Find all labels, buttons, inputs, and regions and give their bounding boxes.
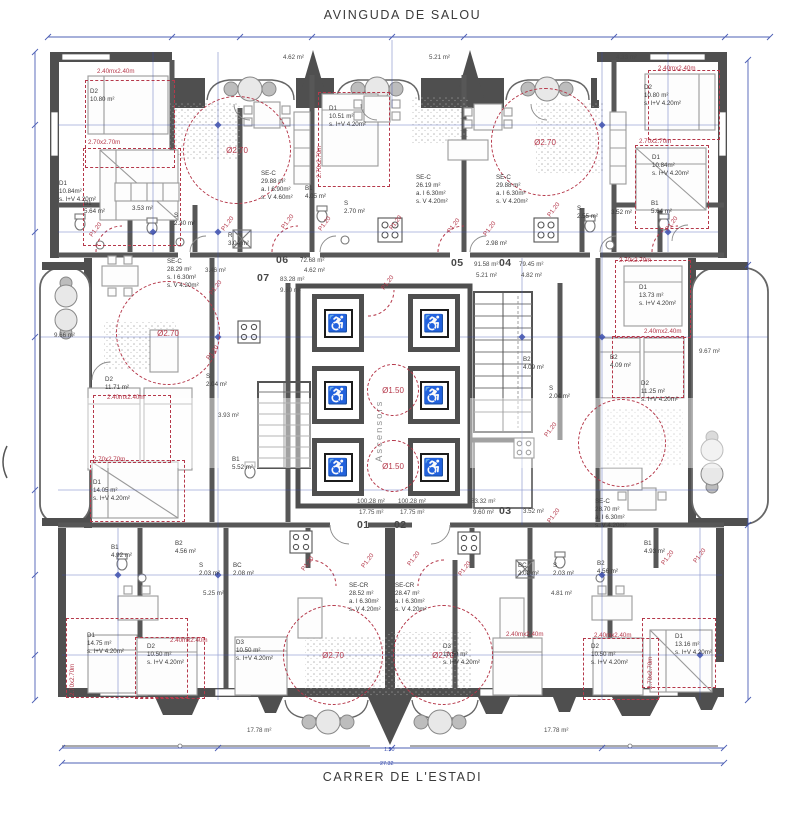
plan-label: 2.40mx2.40m	[170, 637, 208, 645]
plan-label: 3.53 m²	[132, 205, 153, 213]
plan-label: SE-CR 28.47 m² a. I 6.30m² s. V 4.20m²	[395, 582, 427, 614]
plan-label: P1.20	[546, 507, 562, 525]
plan-label: B2 4.09 m²	[610, 354, 631, 370]
plan-label: 17.75 m²	[400, 509, 424, 517]
plan-label: BC 2.08 m²	[518, 562, 539, 578]
plan-label: 2.70x2.70m	[88, 139, 120, 147]
plan-label: D1 10.84m² s. I+V 4.20m²	[652, 154, 689, 178]
plan-label: 2.40mx2.40m	[594, 632, 632, 640]
plan-label: P1.20	[543, 421, 559, 439]
plan-label: 9.60 m²	[280, 287, 301, 295]
plan-label: 1.50	[384, 747, 395, 754]
plan-label: 3.52 m²	[611, 209, 632, 217]
plan-label: 5.25 m²	[203, 590, 224, 598]
plan-label: 06	[276, 254, 288, 268]
plan-label: 9.60 m²	[473, 509, 494, 517]
plan-label: S 2.03 m²	[199, 562, 220, 578]
clearance-circle-label: Ø2.70	[322, 651, 344, 660]
plan-label: S 2.70 m²	[344, 200, 365, 216]
plan-label: B1 4.92 m²	[111, 544, 132, 560]
plan-label: D1 14.75 m² s. I+V 4.20m²	[87, 632, 124, 656]
clearance-circle-label: Ø2.70	[157, 329, 179, 338]
plan-label: R 3.04 m²	[228, 232, 249, 248]
plan-label: P1.20	[208, 279, 224, 297]
plan-label: 91.58 m²	[474, 261, 498, 269]
plan-label: P1.20	[406, 550, 422, 568]
plan-label: P1.20	[546, 201, 562, 219]
plan-label: 72.68 m²	[300, 257, 324, 265]
plan-label: P1.20	[317, 215, 333, 233]
plan-label: B2 4.09 m²	[523, 356, 544, 372]
plan-label: 2.40mx2.40m	[97, 68, 135, 76]
plan-label: P1.20	[692, 547, 708, 565]
plan-label: S 2.55 m²	[577, 205, 598, 221]
plan-label: 2.70x2.70m	[647, 657, 655, 689]
plan-label: D2 11.25 m² s. I+V 4.20m²	[641, 380, 678, 404]
clearance-circle: Ø1.50	[367, 364, 419, 416]
plan-label: 3.52 m²	[523, 508, 544, 516]
plan-label: P1.20	[457, 560, 473, 578]
plan-label: D1 10.51 m² s. I+V 4.20m²	[329, 105, 366, 129]
plan-label: 4.82 m²	[521, 272, 542, 280]
plan-label: D1 13.73 m² s. I+V 4.20m²	[639, 284, 676, 308]
plan-label: D2 10.80 m²	[90, 88, 114, 104]
plan-label: SE-CR 28.52 m² a. I 6.30m² s. V 4.20m²	[349, 582, 381, 614]
clearance-circle: Ø2.70	[116, 281, 220, 385]
plan-label: 17.78 m²	[544, 727, 568, 735]
floor-plan-page: AVINGUDA DE SALOU CARRER DE L'ESTADI	[0, 0, 805, 814]
clearance-circle: Ø1.50	[367, 440, 419, 492]
plan-label: 9.67 m²	[699, 348, 720, 356]
plan-label: 17.75 m²	[359, 509, 383, 517]
plan-label: 4.62 m²	[304, 267, 325, 275]
plan-label: 2.98 m²	[486, 240, 507, 248]
plan-label: 5.21 m²	[476, 272, 497, 280]
plan-label: 3.93 m²	[218, 412, 239, 420]
plan-label: P1.20	[482, 220, 498, 238]
plan-label: D3 10.50 m² s. I+V 4.20m²	[236, 639, 273, 663]
plan-label: D1 13.16 m² s. I+V 4.20m²	[675, 633, 712, 657]
plan-label: 2.40mx2.40m	[107, 394, 145, 402]
plan-label: P1.20	[446, 217, 462, 235]
plan-label: P1.20	[300, 555, 316, 573]
clearance-circle-label: Ø2.70	[226, 146, 248, 155]
plan-label: P1.20	[220, 215, 236, 233]
plan-label: 83.32 m²	[471, 498, 495, 506]
plan-label: SE-C 29.88 m² a. I 6.90m² s. V 4.60m²	[261, 170, 293, 202]
plan-label: SE-C 29.88 m² a. I 6.30m² s. V 4.20m²	[496, 174, 528, 206]
plan-label: 4.81 m²	[551, 590, 572, 598]
plan-label: 2.70x2.70m	[619, 257, 651, 265]
plan-label: B1 4.05 m²	[305, 185, 326, 201]
plan-label: S 2.03 m²	[553, 562, 574, 578]
plan-label: B1 5.64 m²	[84, 200, 105, 216]
plan-label: P1.20	[388, 214, 404, 232]
plan-label: P1.20	[380, 274, 396, 292]
plan-label: 4.62 m²	[283, 54, 304, 62]
plan-label: 07	[257, 272, 269, 286]
plan-label: 79.45 m²	[519, 261, 543, 269]
plan-label: S 2.30 m²	[174, 212, 195, 228]
plan-label: S 2.04 m²	[549, 385, 570, 401]
plan-label: D2 10.80 m² s. I+V 4.20m²	[644, 84, 681, 108]
plan-label: SE-C 26.19 m² a. I 6.30m² s. V 4.20m²	[416, 174, 448, 206]
plan-label: D1 14.05 m² s. I+V 4.20m²	[93, 479, 130, 503]
plan-label: D2 11.71 m²	[105, 376, 129, 392]
plan-label: 17.78 m²	[247, 727, 271, 735]
plan-label: 5.21 m²	[429, 54, 450, 62]
plan-label: 2.70x2.70m	[316, 146, 324, 178]
clearance-circle-label: Ø2.70	[534, 138, 556, 147]
plan-label: S 2.04 m²	[206, 373, 227, 389]
plan-label: 04	[499, 257, 511, 271]
plan-label: 2.70x2.70m	[69, 664, 77, 696]
plan-label: 83.28 m²	[280, 276, 304, 284]
plan-label: 01	[357, 519, 369, 533]
plan-label: 100.28 m²	[357, 498, 385, 506]
plan-label: 2.40mx2.40m	[644, 328, 682, 336]
clearance-circle	[578, 399, 666, 487]
clearance-circle-label: Ø1.50	[382, 462, 404, 471]
plan-label: 2.70x2.70m	[93, 456, 125, 464]
plan-label: B1 5.64 m²	[651, 200, 672, 216]
plan-label: 4.33 m²	[616, 54, 637, 62]
plan-label: BC 2.08 m²	[233, 562, 254, 578]
plan-label: 100.28 m²	[398, 498, 426, 506]
plan-label: 2.40mx2.40m	[658, 65, 696, 73]
plan-label: 2.70x2.70m	[639, 138, 671, 146]
plan-label: P1.20	[360, 552, 376, 570]
plan-label: D2 10.50 m² s. I+V 4.20m²	[591, 643, 628, 667]
clearance-rect	[93, 395, 171, 463]
annotation-layer: Ø2.70Ø2.70Ø2.70Ø2.70Ø2.70Ø1.50Ø1.50D2 10…	[0, 0, 805, 814]
plan-label: B2 4.56 m²	[175, 540, 196, 556]
plan-label: SE-C 28.29 m² s. I 6.30m² s. V 4.20m²	[167, 258, 199, 290]
clearance-circle-label: Ø1.50	[382, 386, 404, 395]
plan-label: 3.46 m²	[205, 267, 226, 275]
clearance-circle: Ø2.70	[283, 605, 383, 705]
plan-label: 02	[394, 519, 406, 533]
plan-label: B1 5.52 m²	[232, 456, 253, 472]
plan-label: 05	[451, 257, 463, 271]
plan-label: 27.32	[380, 761, 394, 768]
plan-label: 9.66 m²	[54, 332, 75, 340]
plan-label: D2 10.50 m² s. I+V 4.20m²	[147, 643, 184, 667]
plan-label: B2 4.56 m²	[597, 560, 618, 576]
plan-label: 03	[499, 505, 511, 519]
plan-label: P1.20	[280, 213, 296, 231]
plan-label: 2.40mx2.40m	[506, 631, 544, 639]
plan-label: B1 4.93 m²	[644, 540, 665, 556]
plan-label: D3 10.50 m² s. I+V 4.20m²	[443, 643, 480, 667]
plan-label: SE-C 28.70 m² a. I 6.30m² s. V 4.20m²	[595, 498, 627, 530]
